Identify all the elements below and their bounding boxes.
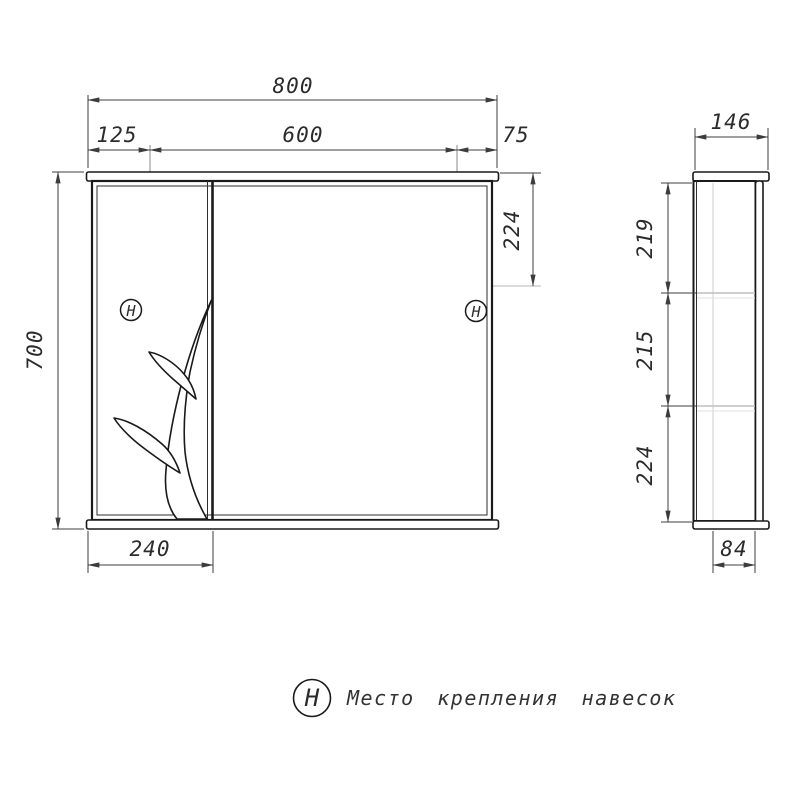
dim-side-middle-section: 215: [633, 330, 657, 371]
front-cabinet-body: [87, 172, 499, 529]
dim-side-depth: 146: [711, 110, 752, 134]
dim-front-left-section: 125: [97, 123, 138, 147]
legend-symbol-label: H: [304, 684, 320, 712]
front-carcass: [92, 181, 492, 520]
cabinet-drawing-svg: H H 800 125: [0, 0, 800, 800]
hanger-marker-left: H: [121, 300, 142, 321]
dim-front-total-height: 700: [23, 330, 47, 371]
side-carcass: [694, 181, 756, 521]
hanger-marker-left-label: H: [125, 302, 136, 320]
dim-side-bottom-depth: 84: [720, 537, 747, 561]
legend: H Место крепления навесок: [294, 680, 677, 717]
side-cornice: [693, 172, 769, 181]
side-plinth: [693, 521, 769, 529]
dim-front-total-width: 800: [273, 74, 314, 98]
legend-caption: Место крепления навесок: [346, 686, 676, 710]
hanger-marker-right-label: H: [470, 303, 481, 321]
dim-front-hanger-offset: 224: [500, 210, 524, 251]
dim-front-mirror-section: 600: [283, 123, 324, 147]
side-cabinet-body: [693, 172, 769, 529]
side-view: 146 219 215 224 84: [633, 110, 769, 573]
side-door-panel: [756, 181, 764, 521]
hanger-marker-right: H: [466, 301, 487, 322]
dim-side-top-section: 219: [633, 218, 657, 259]
dim-side-bottom-section: 224: [633, 445, 657, 486]
front-plinth: [87, 520, 499, 529]
technical-drawing-page: H H 800 125: [0, 0, 800, 800]
dim-front-door-width: 240: [130, 537, 171, 561]
front-view: H H 800 125: [23, 74, 541, 573]
front-cornice: [87, 172, 499, 181]
dim-front-right-section: 75: [502, 123, 529, 147]
